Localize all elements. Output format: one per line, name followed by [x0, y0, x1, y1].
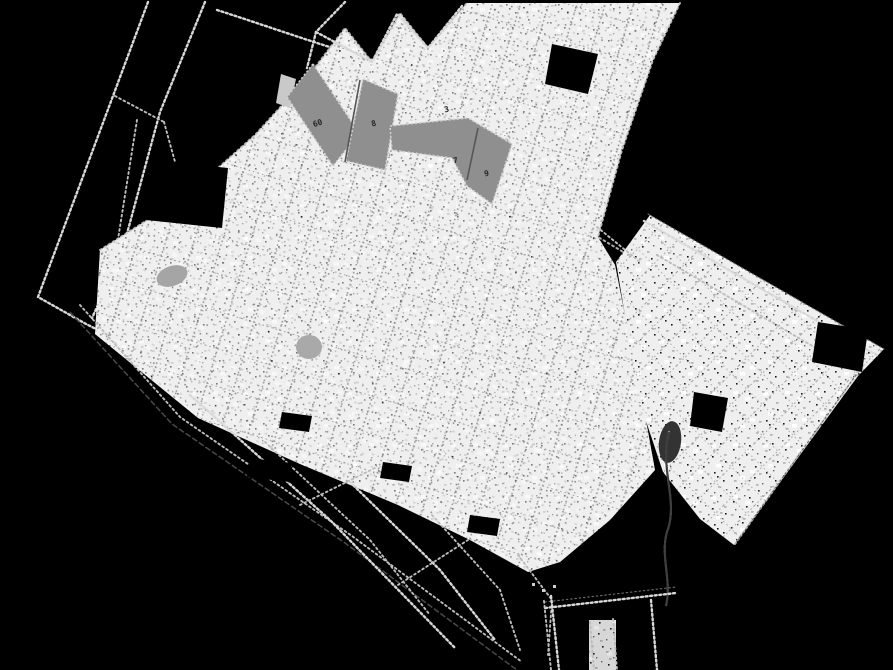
- site-plan-map: 60 8 3 7 9: [0, 0, 893, 670]
- gray-patch: [296, 335, 322, 359]
- site-plan-page: 60 8 3 7 9: [0, 0, 893, 670]
- black-patch: [690, 392, 728, 432]
- black-patch: [146, 160, 228, 228]
